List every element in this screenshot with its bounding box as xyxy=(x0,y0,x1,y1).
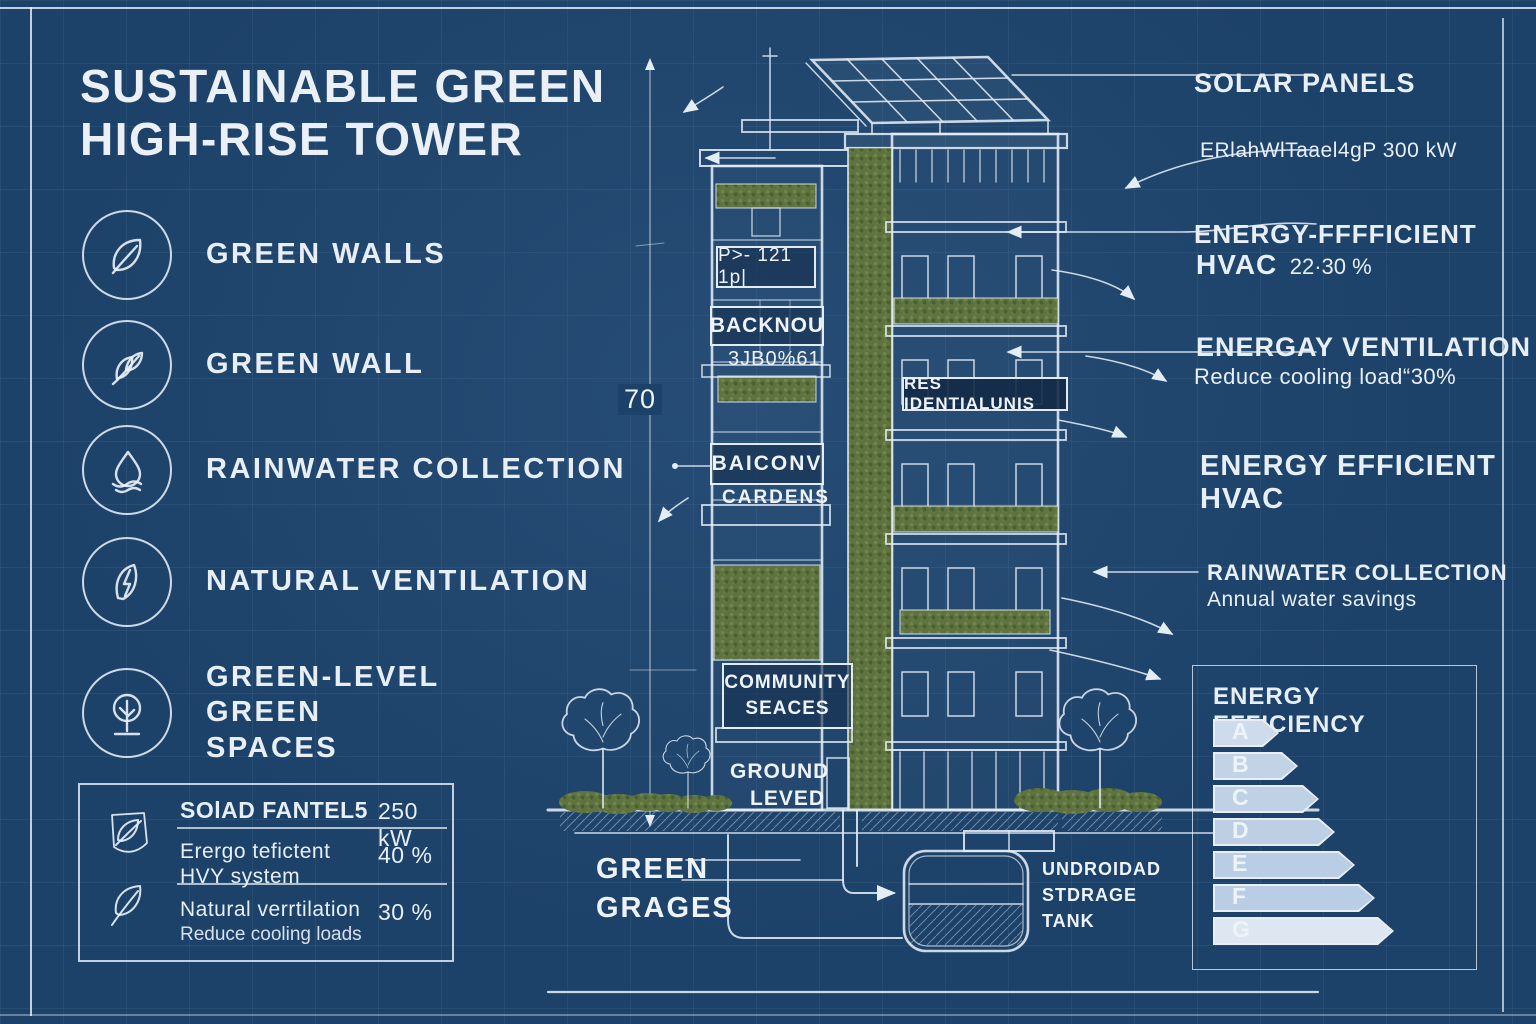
panel-tag-label: P>- 121 1p| xyxy=(716,246,816,288)
energy-bar-letter: E xyxy=(1229,852,1250,879)
solar-panels-heading: SOLAR PANELS xyxy=(1194,68,1416,99)
feature-rainwater-collection: RAINWATER COLLECTION xyxy=(82,425,666,515)
feature-label: GREEN WALLS xyxy=(206,237,666,272)
rainwater-heading: RAINWATER COLLECTION xyxy=(1207,560,1508,586)
energy-bar-letter: D xyxy=(1229,819,1252,846)
energy-bar-letter: A xyxy=(1229,720,1252,747)
energy-bar-a: A xyxy=(1213,719,1279,747)
hvac-efficient-heading: ENERGY-FFFFICIENT xyxy=(1194,219,1477,250)
feature-green-walls: GREEN WALLS xyxy=(82,210,666,300)
feature-label: GREEN WALL xyxy=(206,347,666,382)
feature-green-wall: GREEN WALL xyxy=(82,320,666,410)
backnou-sub-label: 3JB0%61 xyxy=(728,348,821,371)
balcony-gardens-label: BAICONV xyxy=(710,443,824,485)
feature-green-level-spaces: GREEN-LEVEL GREEN SPACES xyxy=(82,660,456,766)
energy-rating-bars: ABCDEFG xyxy=(1213,719,1394,950)
ground-level-label: GROUND LEVED xyxy=(730,758,829,813)
rainwater-subtext: Annual water savings xyxy=(1207,588,1417,612)
stat-row-value: 40 % xyxy=(378,842,432,869)
energy-bar-letter: G xyxy=(1229,918,1253,945)
energy-bar-c: C xyxy=(1213,785,1319,813)
residential-units-label: RES IDENTIALUNIS xyxy=(902,377,1068,411)
feature-label: GREEN-LEVEL GREEN SPACES xyxy=(206,660,456,766)
stat-row-label: Erergo tefictent HVY system xyxy=(180,839,370,889)
leaf-icon xyxy=(82,210,172,300)
stat-row-label: Natural verrtilation xyxy=(180,897,370,922)
feature-label: NATURAL VENTILATION xyxy=(206,564,666,599)
tree-icon xyxy=(82,668,172,758)
hvac-efficient-value-line: HVAC 22·30 % xyxy=(1196,249,1372,281)
energy-bar-letter: B xyxy=(1229,753,1252,780)
ventilation-subtext: Reduce cooling load“30% xyxy=(1194,364,1456,390)
divider xyxy=(177,827,447,829)
leaf-bolt-icon xyxy=(82,537,172,627)
stat-row-value: 30 % xyxy=(378,899,432,926)
stat-row-label: SOlAD FANTEL5 xyxy=(180,797,370,825)
energy-efficient-hvac-sub: HVAC xyxy=(1200,483,1284,516)
energy-efficiency-panel: ENERGY EFFICIENCY ABCDEFG xyxy=(1192,665,1477,970)
energy-bar-letter: C xyxy=(1229,786,1252,813)
storage-tank-label: UNDROIDAD STDRAGE TANK xyxy=(1042,856,1161,934)
backnou-label: BACKNOU xyxy=(710,306,824,346)
energy-efficient-hvac-heading: ENERGY EFFICIENT xyxy=(1200,450,1496,483)
hvac-value: 22·30 % xyxy=(1290,254,1372,279)
energy-bar-letter: F xyxy=(1229,885,1249,912)
green-garages-label: GREEN GRAGES xyxy=(596,850,734,928)
energy-bar-b: B xyxy=(1213,752,1298,780)
stats-table: SOlAD FANTEL5 250 kW Erergo tefictent HV… xyxy=(78,783,454,962)
energy-bar-f: F xyxy=(1213,884,1375,912)
leaf-icon xyxy=(104,877,152,929)
energy-bar-d: D xyxy=(1213,818,1335,846)
feature-label: RAINWATER COLLECTION xyxy=(206,452,666,487)
divider xyxy=(177,883,447,885)
height-dimension: 70 xyxy=(618,384,662,415)
page-title: SUSTAINABLE GREEN HIGH-RISE TOWER xyxy=(80,60,610,167)
energy-bar-e: E xyxy=(1213,851,1355,879)
solar-panels-value: ERlahWlTaael4gP 300 kW xyxy=(1200,139,1457,163)
community-spaces-label: COMMUNITY SEACES xyxy=(722,663,853,729)
feature-natural-ventilation: NATURAL VENTILATION xyxy=(82,537,666,627)
shield-leaf-icon xyxy=(106,809,152,857)
ventilation-heading: ENERGAY VENTILATION xyxy=(1196,332,1531,363)
sprout-icon xyxy=(82,320,172,410)
blueprint-canvas: SUSTAINABLE GREEN HIGH-RISE TOWER GREEN … xyxy=(0,0,1536,1024)
water-drop-icon xyxy=(82,425,172,515)
balcony-gardens-sub-label: CARDENS xyxy=(722,487,830,509)
hvac-label: HVAC xyxy=(1196,249,1277,280)
energy-bar-g: G xyxy=(1213,917,1394,945)
stat-row-subtext: Reduce cooling loads xyxy=(180,924,362,946)
